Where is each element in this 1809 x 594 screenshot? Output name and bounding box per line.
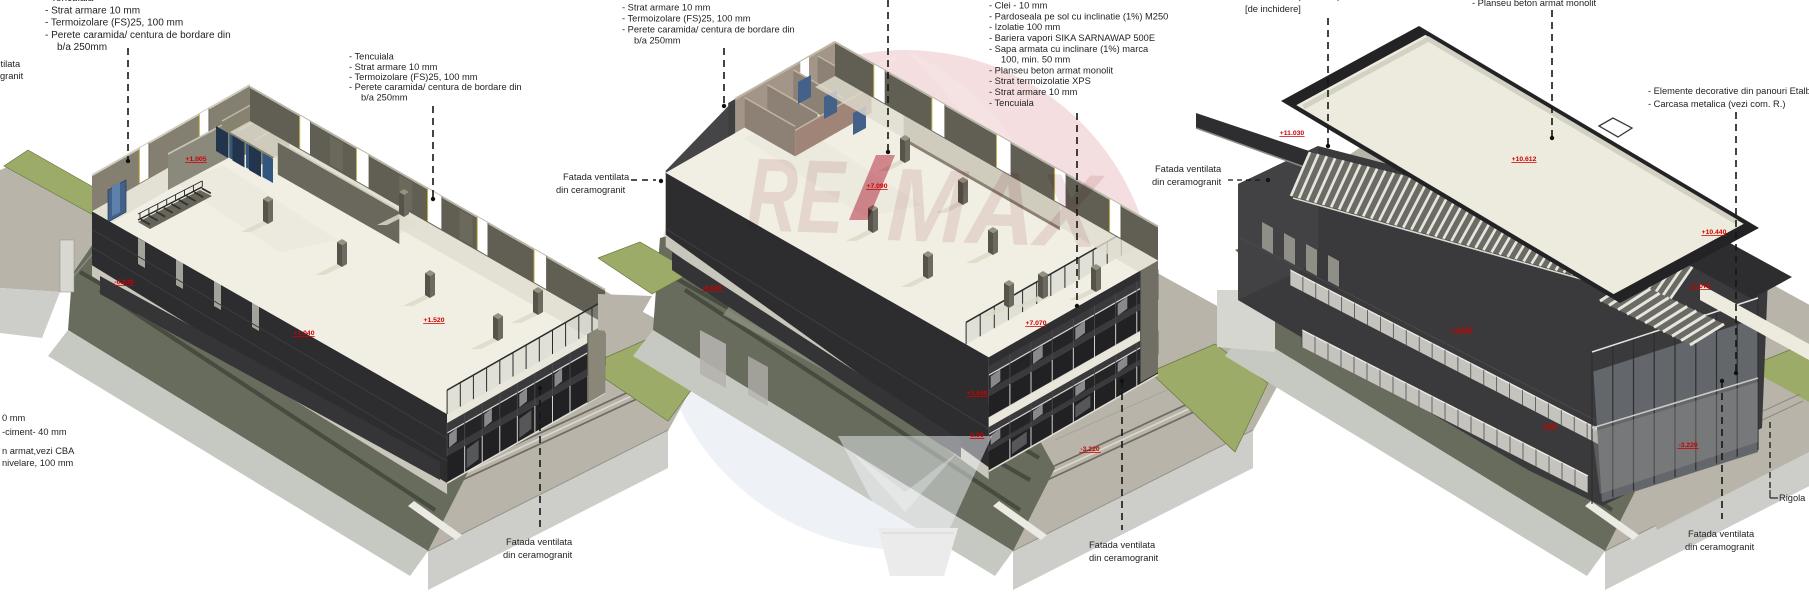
svg-text:b/a 250mm: b/a 250mm xyxy=(634,36,681,46)
svg-text:- Termoizolare (FS)25, 100 mm: - Termoizolare (FS)25, 100 mm xyxy=(45,18,183,29)
svg-text:- Perete caramida/ centura de: - Perete caramida/ centura de bordare di… xyxy=(349,82,522,92)
svg-text:din ceramogranit: din ceramogranit xyxy=(503,550,573,560)
svg-text:- Strat armare 10 mm: - Strat armare 10 mm xyxy=(349,62,438,72)
svg-text:- Strat termoizolatie XPS: - Strat termoizolatie XPS xyxy=(989,76,1091,86)
svg-text:din ceramogranit: din ceramogranit xyxy=(0,71,24,81)
svg-text:100, min. 50 mm: 100, min. 50 mm xyxy=(1001,55,1070,65)
svg-text:din ceramogranit: din ceramogranit xyxy=(1685,542,1755,552)
svg-text:n armat,vezi CBA: n armat,vezi CBA xyxy=(2,446,75,456)
svg-text:+7.090: +7.090 xyxy=(867,183,888,190)
svg-text:b/a 250mm: b/a 250mm xyxy=(57,42,107,53)
svg-text:- Tencuiala: - Tencuiala xyxy=(622,0,668,2)
svg-text:- Termoizolare (FS)25, 100 mm: - Termoizolare (FS)25, 100 mm xyxy=(622,14,751,24)
svg-text:- Clei - 10 mm: - Clei - 10 mm xyxy=(989,1,1048,11)
svg-text:0.00: 0.00 xyxy=(1543,423,1556,430)
svg-text:Fatada ventilata: Fatada ventilata xyxy=(506,537,573,547)
svg-text:- Perete caramida/ centura de: - Perete caramida/ centura de bordare di… xyxy=(622,25,795,35)
svg-text:- Strat armare 10 mm: - Strat armare 10 mm xyxy=(989,87,1078,97)
svg-text:+10.440: +10.440 xyxy=(1702,229,1727,236)
svg-text:din ceramogranit: din ceramogranit xyxy=(1152,177,1222,187)
svg-text:-0.030: -0.030 xyxy=(114,279,133,286)
svg-text:din ceramogranit: din ceramogranit xyxy=(1089,553,1159,563)
svg-text:- Tencuiala: - Tencuiala xyxy=(349,52,395,62)
svg-text:-3.220: -3.220 xyxy=(1678,442,1697,449)
svg-text:0 mm: 0 mm xyxy=(2,413,25,423)
svg-text:- Tencuiala: - Tencuiala xyxy=(989,98,1035,108)
svg-text:+1.005: +1.005 xyxy=(186,156,207,163)
svg-text:- Bariera vapori SIKA SARNAWAP: - Bariera vapori SIKA SARNAWAP 500E xyxy=(989,33,1155,43)
svg-text:Fatada ventilata: Fatada ventilata xyxy=(0,59,21,69)
svg-text:Rigola: Rigola xyxy=(1779,493,1806,503)
svg-text:- Tencuiala: - Tencuiala xyxy=(45,0,94,4)
svg-text:- Strat armare 10 mm: - Strat armare 10 mm xyxy=(622,3,711,13)
svg-text:Fatada ventilata: Fatada ventilata xyxy=(563,172,630,182)
svg-text:Fatada ventilata: Fatada ventilata xyxy=(1089,540,1156,550)
svg-text:- Sapa armata cu inclinare (1%: - Sapa armata cu inclinare (1%) marca xyxy=(989,44,1149,54)
svg-text:nivelare, 100 mm: nivelare, 100 mm xyxy=(2,458,74,468)
svg-text:+1.040: +1.040 xyxy=(294,330,315,337)
svg-text:- Pardoseala pe sol cu inclina: - Pardoseala pe sol cu inclinatie (1%) M… xyxy=(989,11,1168,21)
svg-text:-0.030: -0.030 xyxy=(702,285,721,292)
svg-text:din ceramogranit: din ceramogranit xyxy=(556,185,626,195)
svg-text:+3.540: +3.540 xyxy=(1452,327,1473,334)
svg-text:RE: RE xyxy=(745,137,848,256)
svg-text:- Perete caramida/ centura de: - Perete caramida/ centura de bordare di… xyxy=(45,30,231,41)
svg-text:Atic usor din panouri tip sand: Atic usor din panouri tip sandwich xyxy=(1245,0,1384,1)
svg-text:- Termoizolare (FS)25, 100 mm: - Termoizolare (FS)25, 100 mm xyxy=(349,72,478,82)
svg-text:[de inchidere]: [de inchidere] xyxy=(1245,4,1301,14)
svg-text:+1.520: +1.520 xyxy=(424,317,445,324)
svg-text:- Izolatie 100 mm: - Izolatie 100 mm xyxy=(989,22,1061,32)
svg-text:Fatada ventilata: Fatada ventilata xyxy=(1155,164,1222,174)
svg-text:- Planseu beton armat monolit: - Planseu beton armat monolit xyxy=(989,65,1113,75)
svg-text:+11.030: +11.030 xyxy=(1280,130,1305,137)
svg-text:+3.540: +3.540 xyxy=(967,390,988,397)
svg-text:-ciment- 40 mm: -ciment- 40 mm xyxy=(2,427,67,437)
svg-text:+7.070: +7.070 xyxy=(1026,320,1047,327)
svg-text:-3.220: -3.220 xyxy=(1080,446,1099,453)
svg-text:- Elemente decorative din pano: - Elemente decorative din panouri Etalb xyxy=(1648,86,1809,96)
svg-text:+7.070: +7.070 xyxy=(1690,283,1711,290)
svg-text:- Strat armare 10 mm: - Strat armare 10 mm xyxy=(45,5,140,16)
svg-text:MAX: MAX xyxy=(885,147,1106,271)
svg-text:- Planseu beton armat monolit: - Planseu beton armat monolit xyxy=(1472,0,1596,8)
svg-text:- Carcasa metalica (vezi com.: - Carcasa metalica (vezi com. R.) xyxy=(1648,99,1785,109)
svg-text:+10.612: +10.612 xyxy=(1512,156,1537,163)
svg-text:Fatada ventilata: Fatada ventilata xyxy=(1688,529,1755,539)
svg-text:b/a 250mm: b/a 250mm xyxy=(361,92,408,102)
svg-text:0.00: 0.00 xyxy=(970,432,983,439)
